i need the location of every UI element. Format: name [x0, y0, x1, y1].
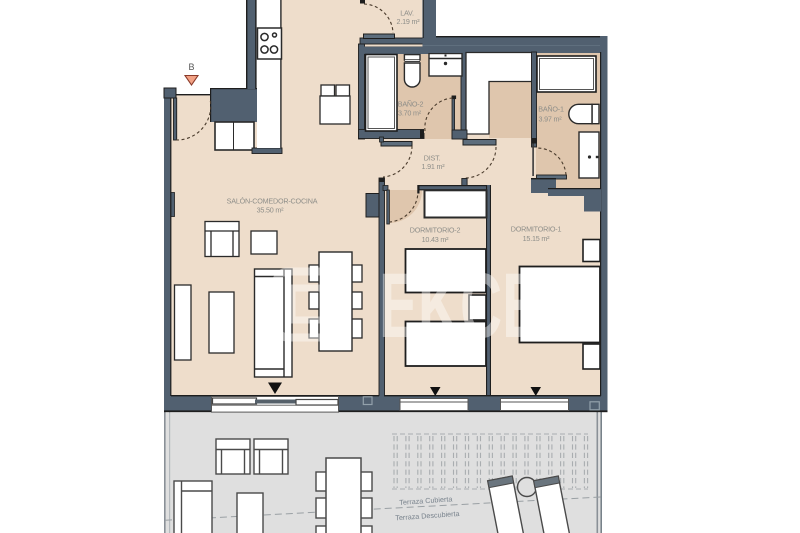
- svg-text:35.50 m²: 35.50 m²: [257, 206, 285, 215]
- svg-text:10.43 m²: 10.43 m²: [422, 235, 450, 244]
- svg-text:SALÓN-COMEDOR-COCINA: SALÓN-COMEDOR-COCINA: [227, 197, 318, 206]
- svg-text:BAÑO-1: BAÑO-1: [538, 105, 564, 114]
- svg-text:B: B: [188, 62, 194, 72]
- svg-text:EKCE: EKCE: [379, 255, 541, 357]
- svg-text:3.97 m²: 3.97 m²: [539, 115, 563, 124]
- svg-text:15.15 m²: 15.15 m²: [523, 234, 551, 243]
- svg-text:2.19 m²: 2.19 m²: [397, 17, 421, 26]
- svg-text:3.70 m²: 3.70 m²: [398, 109, 422, 118]
- svg-text:DORMITORIO-1: DORMITORIO-1: [511, 225, 562, 234]
- svg-text:DORMITORIO-2: DORMITORIO-2: [410, 226, 461, 235]
- svg-text:1.91 m²: 1.91 m²: [422, 162, 446, 171]
- svg-text:BAÑO-2: BAÑO-2: [398, 100, 424, 109]
